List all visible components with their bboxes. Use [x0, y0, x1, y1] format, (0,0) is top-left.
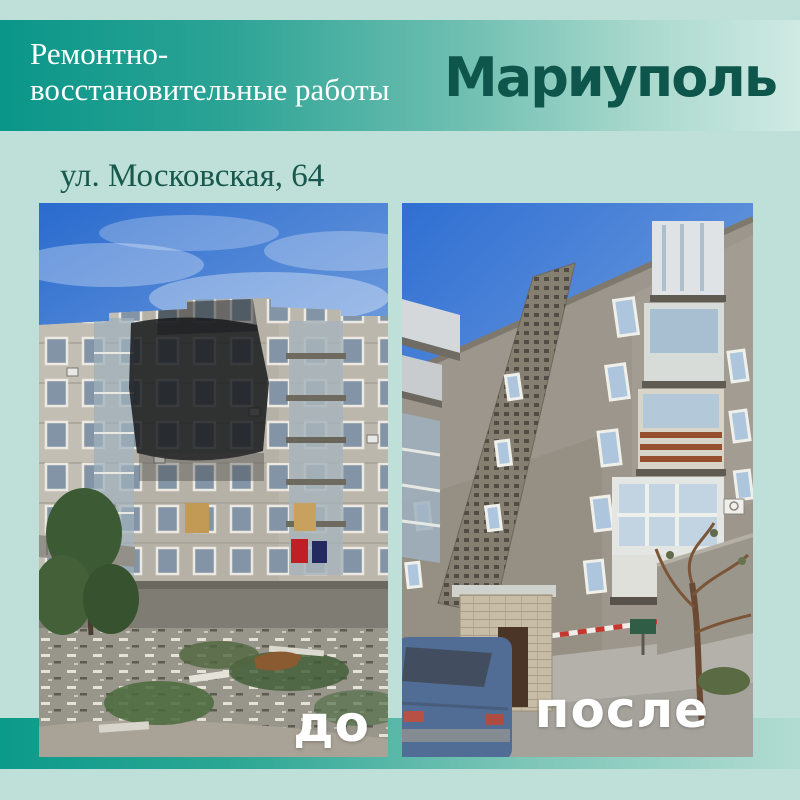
blue-cloth	[312, 541, 327, 563]
after-label: после	[535, 685, 709, 735]
city-name: Мариуполь	[444, 46, 776, 109]
fire-damage	[129, 299, 269, 481]
ac-unit	[724, 499, 744, 514]
sign-plate	[630, 619, 656, 634]
poster: Ремонтно- восстановительные работы Мариу…	[0, 0, 800, 800]
after-photo-illustration	[402, 203, 753, 757]
after-photo: после	[402, 203, 753, 757]
banner-title-line1: Ремонтно-	[30, 36, 390, 72]
before-photo: до	[39, 203, 388, 757]
red-cloth	[291, 539, 308, 563]
header-banner: Ремонтно- восстановительные работы Мариу…	[0, 20, 800, 131]
address-line: ул. Московская, 64	[60, 158, 324, 195]
before-label: до	[293, 699, 370, 749]
before-photo-illustration	[39, 203, 388, 757]
banner-title-line2: восстановительные работы	[30, 72, 390, 108]
wood-frame-balcony	[638, 389, 724, 469]
banner-title: Ремонтно- восстановительные работы	[30, 36, 390, 108]
blue-car	[402, 637, 512, 757]
